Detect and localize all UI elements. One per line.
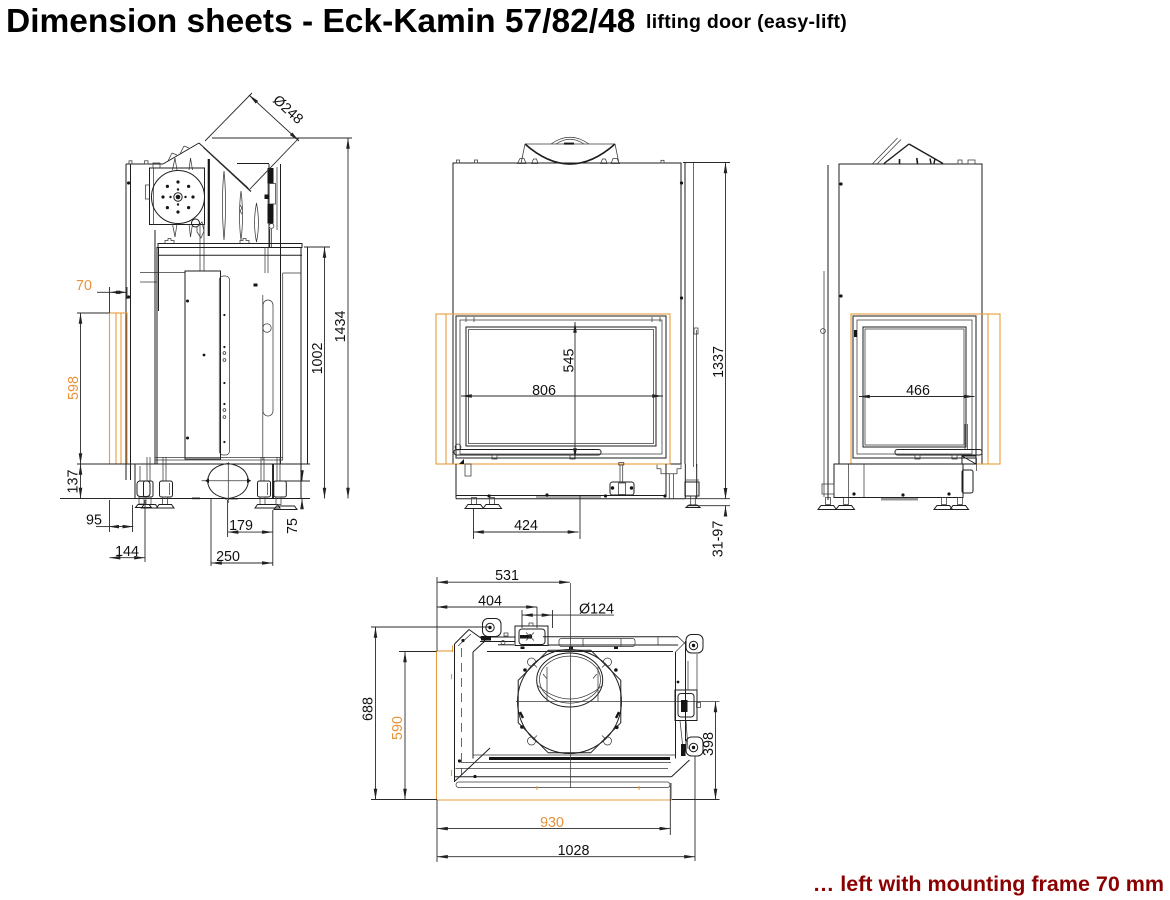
svg-text:1028: 1028 <box>558 843 590 859</box>
svg-text:250: 250 <box>216 549 240 565</box>
svg-text:31-97: 31-97 <box>711 521 727 558</box>
svg-text:930: 930 <box>540 815 564 831</box>
svg-text:75: 75 <box>285 518 301 534</box>
svg-text:404: 404 <box>478 594 502 610</box>
svg-text:688: 688 <box>361 697 377 721</box>
svg-text:424: 424 <box>514 518 538 534</box>
svg-text:Dimension sheets - Eck-Kamin 5: Dimension sheets - Eck-Kamin 57/82/48 <box>6 3 635 40</box>
svg-text:70: 70 <box>76 278 92 294</box>
svg-text:137: 137 <box>66 470 82 494</box>
svg-text:144: 144 <box>115 544 139 560</box>
svg-text:545: 545 <box>562 349 578 373</box>
svg-text:1002: 1002 <box>310 343 326 375</box>
svg-text:… left with mounting frame 70: … left with mounting frame 70 mm <box>813 872 1164 896</box>
svg-text:531: 531 <box>495 568 519 584</box>
svg-text:590: 590 <box>390 716 406 740</box>
svg-text:398: 398 <box>701 732 717 756</box>
svg-text:598: 598 <box>66 376 82 400</box>
svg-text:466: 466 <box>906 383 930 399</box>
svg-text:1337: 1337 <box>711 346 727 378</box>
svg-text:179: 179 <box>229 518 253 534</box>
svg-text:95: 95 <box>86 513 102 529</box>
svg-text:1434: 1434 <box>333 311 349 343</box>
svg-text:806: 806 <box>532 383 556 399</box>
svg-text:Ø248: Ø248 <box>269 92 306 127</box>
svg-text:Ø124: Ø124 <box>579 602 614 618</box>
svg-text:lifting door (easy-lift): lifting door (easy-lift) <box>646 11 847 33</box>
